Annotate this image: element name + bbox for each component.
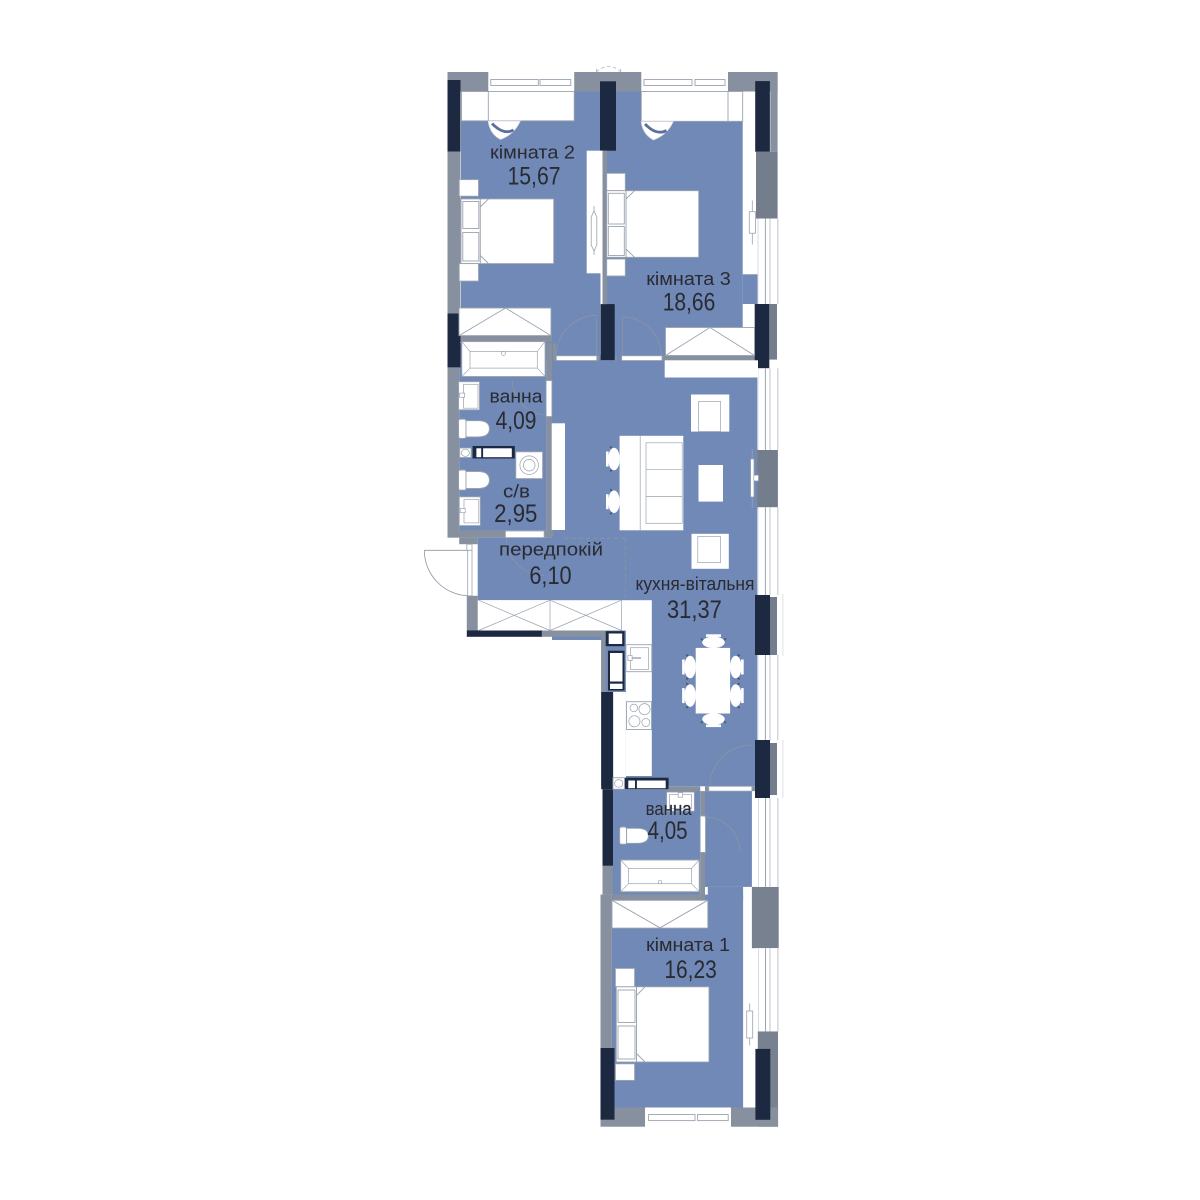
svg-text:16,23: 16,23 [664, 956, 717, 984]
svg-text:31,37: 31,37 [667, 596, 722, 624]
svg-text:с/в: с/в [503, 482, 530, 502]
svg-text:4,09: 4,09 [496, 407, 537, 435]
svg-text:кімната 1: кімната 1 [646, 935, 730, 955]
svg-text:6,10: 6,10 [529, 562, 571, 590]
svg-text:кухня-вітальня: кухня-вітальня [636, 574, 755, 594]
svg-text:ванна: ванна [490, 387, 544, 407]
svg-text:передпокій: передпокій [499, 540, 603, 560]
svg-text:кімната 3: кімната 3 [646, 269, 731, 289]
svg-text:2,95: 2,95 [494, 500, 537, 528]
svg-text:4,05: 4,05 [648, 817, 688, 845]
svg-text:кімната 2: кімната 2 [490, 143, 575, 163]
svg-text:15,67: 15,67 [508, 163, 561, 191]
svg-text:ванна: ванна [646, 799, 693, 819]
svg-text:18,66: 18,66 [663, 289, 716, 317]
